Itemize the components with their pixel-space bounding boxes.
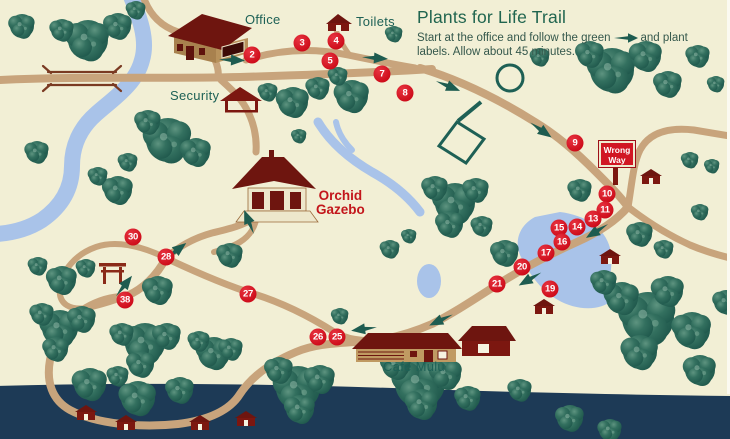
pond-small [417,264,441,298]
survey-square-shape [439,122,484,163]
orchid-gazebo-label: Orchid Gazebo [316,189,365,217]
trail-marker-38: 38 [117,292,134,309]
green-arrow-icon [614,33,638,43]
trail-marker-9: 9 [567,135,584,152]
wrong-way-post [613,166,618,185]
toilets-icon [326,14,352,31]
trail-marker-27: 27 [240,286,257,303]
survey-square-stem [458,102,481,121]
trail-marker-17: 17 [538,245,555,262]
torii-gate-icon [99,263,126,284]
map-artwork [0,0,730,439]
trail-marker-28: 28 [158,249,175,266]
trail-map: Plants for Life Trail Start at the offic… [0,0,730,439]
trail-marker-25: 25 [329,329,346,346]
trail-marker-3: 3 [294,35,311,52]
security-pavilion-icon [220,87,262,113]
office-building [168,14,252,63]
wrong-way-sign: Wrong Way [599,141,635,167]
cafe-mulu-label: Cafe Mulu [383,359,445,374]
instructions-text: Start at the office and follow the green… [417,31,723,60]
cafe-mulu-building [352,333,462,362]
trail-marker-2: 2 [244,47,261,64]
legend-block: Plants for Life Trail Start at the offic… [417,7,723,60]
trail-marker-20: 20 [514,259,531,276]
trail-marker-8: 8 [397,85,414,102]
hut-icon [533,299,555,314]
trail-marker-10: 10 [599,186,616,203]
trees [8,1,730,439]
trail-marker-19: 19 [542,281,559,298]
trail-marker-16: 16 [554,234,571,251]
toilets-label: Toilets [356,14,395,29]
trail-marker-14: 14 [569,219,586,236]
trail-marker-26: 26 [310,329,327,346]
trail-marker-4: 4 [328,33,345,50]
trail-marker-13: 13 [585,211,602,228]
survey-circle-shape [497,65,523,91]
trail-marker-21: 21 [489,276,506,293]
trail-marker-5: 5 [322,53,339,70]
hut-icon [640,169,662,184]
page-title: Plants for Life Trail [417,7,723,28]
trail-marker-30: 30 [125,229,142,246]
outbuilding [458,326,516,356]
office-label: Office [245,12,281,27]
security-label: Security [170,88,219,103]
trail-marker-7: 7 [374,66,391,83]
